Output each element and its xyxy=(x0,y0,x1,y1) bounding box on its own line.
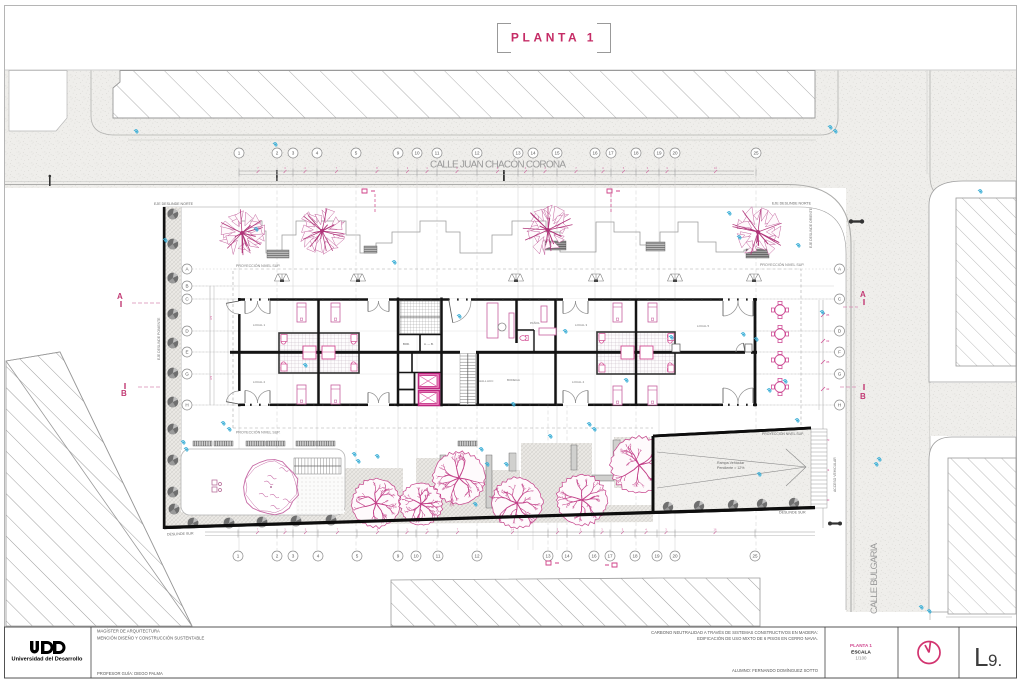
svg-text:1: 1 xyxy=(238,151,241,156)
svg-text:4: 4 xyxy=(317,554,320,559)
svg-text:PROYECCIÓN NIVEL SUP.: PROYECCIÓN NIVEL SUP. xyxy=(236,430,280,435)
svg-text:12: 12 xyxy=(474,151,480,156)
svg-text:CALLE JUAN CHACÓN CORONA: CALLE JUAN CHACÓN CORONA xyxy=(430,158,567,171)
svg-text:PLANTA 1: PLANTA 1 xyxy=(850,643,872,648)
svg-text:PROYECCIÓN NIVEL SUP.: PROYECCIÓN NIVEL SUP. xyxy=(760,262,804,267)
svg-text:EJE DESLINDE PONIENTE: EJE DESLINDE PONIENTE xyxy=(157,317,161,360)
svg-text:G: G xyxy=(185,372,189,377)
svg-text:A: A xyxy=(860,290,866,299)
svg-text:9.: 9. xyxy=(988,651,1002,670)
svg-text:PLANTA 1: PLANTA 1 xyxy=(511,31,597,45)
svg-text:20: 20 xyxy=(672,151,678,156)
svg-text:35: 35 xyxy=(826,313,830,317)
svg-text:H: H xyxy=(185,403,188,408)
svg-text:LOCAL 3: LOCAL 3 xyxy=(575,323,588,327)
svg-text:2: 2 xyxy=(276,554,279,559)
svg-text:18: 18 xyxy=(632,554,638,559)
svg-text:DESLINDE SUR: DESLINDE SUR xyxy=(779,511,806,515)
svg-text:25: 25 xyxy=(752,554,758,559)
svg-text:PROYECCIÓN NIVEL SUP.: PROYECCIÓN NIVEL SUP. xyxy=(762,431,804,436)
svg-text:A. — B.: A. — B. xyxy=(424,342,434,346)
svg-text:4: 4 xyxy=(316,151,319,156)
svg-text:EJE DESLINDE NORTE: EJE DESLINDE NORTE xyxy=(772,202,812,206)
svg-text:32: 32 xyxy=(826,339,830,343)
svg-text:B: B xyxy=(860,392,866,401)
svg-text:5: 5 xyxy=(356,554,359,559)
svg-text:L: L xyxy=(974,642,988,672)
svg-text:13: 13 xyxy=(545,554,551,559)
svg-text:LOCAL 2: LOCAL 2 xyxy=(253,380,266,384)
svg-text:20: 20 xyxy=(672,554,678,559)
svg-text:Universidad del Desarrollo: Universidad del Desarrollo xyxy=(12,657,83,663)
svg-text:CALLE BULGARIA: CALLE BULGARIA xyxy=(869,542,880,614)
svg-text:10: 10 xyxy=(413,554,419,559)
svg-text:3.5: 3.5 xyxy=(209,375,213,380)
svg-text:11: 11 xyxy=(436,554,441,559)
svg-text:Rampa Vehicular: Rampa Vehicular xyxy=(717,461,745,465)
svg-text:2: 2 xyxy=(276,151,279,156)
svg-text:10: 10 xyxy=(414,151,420,156)
svg-text:12: 12 xyxy=(474,554,480,559)
svg-text:BOD.: BOD. xyxy=(403,342,410,346)
svg-text:1/100: 1/100 xyxy=(856,656,868,661)
svg-text:17: 17 xyxy=(608,151,614,156)
svg-text:16: 16 xyxy=(592,151,598,156)
svg-text:EJE DESLINDE ORIENTE: EJE DESLINDE ORIENTE xyxy=(809,207,813,248)
svg-text:42: 42 xyxy=(826,387,830,391)
svg-text:3.5: 3.5 xyxy=(209,315,213,320)
svg-text:BODEGA: BODEGA xyxy=(507,378,520,382)
svg-text:35: 35 xyxy=(826,360,830,364)
svg-text:19: 19 xyxy=(654,554,660,559)
svg-text:G: G xyxy=(838,372,842,377)
svg-text:18: 18 xyxy=(633,151,639,156)
svg-text:EDIFICACIÓN DE USO MIXTO DE 6: EDIFICACIÓN DE USO MIXTO DE 6 PISOS EN C… xyxy=(697,636,818,641)
svg-text:F: F xyxy=(838,350,841,355)
svg-text:LOCAL 4: LOCAL 4 xyxy=(572,380,585,384)
svg-text:EJE DESLINDE NORTE: EJE DESLINDE NORTE xyxy=(154,202,194,206)
svg-text:14: 14 xyxy=(564,554,570,559)
svg-text:A: A xyxy=(117,292,123,301)
svg-text:9: 9 xyxy=(397,151,400,156)
svg-text:16: 16 xyxy=(591,554,597,559)
svg-text:MAGÍSTER DE ARQUITECTURA: MAGÍSTER DE ARQUITECTURA xyxy=(97,629,160,634)
svg-text:CARBONO NEUTRALIDAD A TRAVÉS D: CARBONO NEUTRALIDAD A TRAVÉS DE SISTEMAS… xyxy=(651,630,818,635)
svg-text:ACCESO VEHICULAR: ACCESO VEHICULAR xyxy=(833,457,837,492)
svg-text:15: 15 xyxy=(554,151,560,156)
svg-text:E: E xyxy=(185,350,188,355)
svg-text:PAÑOL: PAÑOL xyxy=(530,320,540,325)
svg-text:H: H xyxy=(838,403,841,408)
svg-text:25: 25 xyxy=(753,151,759,156)
svg-text:ALUMNO: FERNANDO DOMÍNGUEZ SOT: ALUMNO: FERNANDO DOMÍNGUEZ SOTTO xyxy=(732,668,819,673)
svg-text:PROFESOR GUÍA: DIEGO PALMA: PROFESOR GUÍA: DIEGO PALMA xyxy=(97,671,163,676)
svg-text:B: B xyxy=(185,284,188,289)
svg-text:HALL ACC: HALL ACC xyxy=(479,379,494,383)
svg-text:LOCAL 5: LOCAL 5 xyxy=(697,324,710,328)
svg-text:PROYECCIÓN NIVEL SUP.: PROYECCIÓN NIVEL SUP. xyxy=(236,263,280,268)
svg-text:17: 17 xyxy=(607,554,613,559)
svg-text:1: 1 xyxy=(237,554,240,559)
svg-text:Pendiente = 12%: Pendiente = 12% xyxy=(717,466,745,470)
svg-text:LOCAL 1: LOCAL 1 xyxy=(253,323,266,327)
svg-text:13: 13 xyxy=(515,151,521,156)
svg-text:14: 14 xyxy=(530,151,536,156)
svg-text:3: 3 xyxy=(292,554,295,559)
svg-text:19: 19 xyxy=(656,151,662,156)
svg-text:9: 9 xyxy=(397,554,400,559)
svg-text:3: 3 xyxy=(292,151,295,156)
svg-text:B: B xyxy=(121,389,127,398)
svg-text:MENCIÓN DISEÑO Y CONSTRUCCIÓN: MENCIÓN DISEÑO Y CONSTRUCCIÓN SUSTENTABL… xyxy=(97,636,204,641)
svg-text:5: 5 xyxy=(355,151,358,156)
svg-text:11: 11 xyxy=(435,151,440,156)
